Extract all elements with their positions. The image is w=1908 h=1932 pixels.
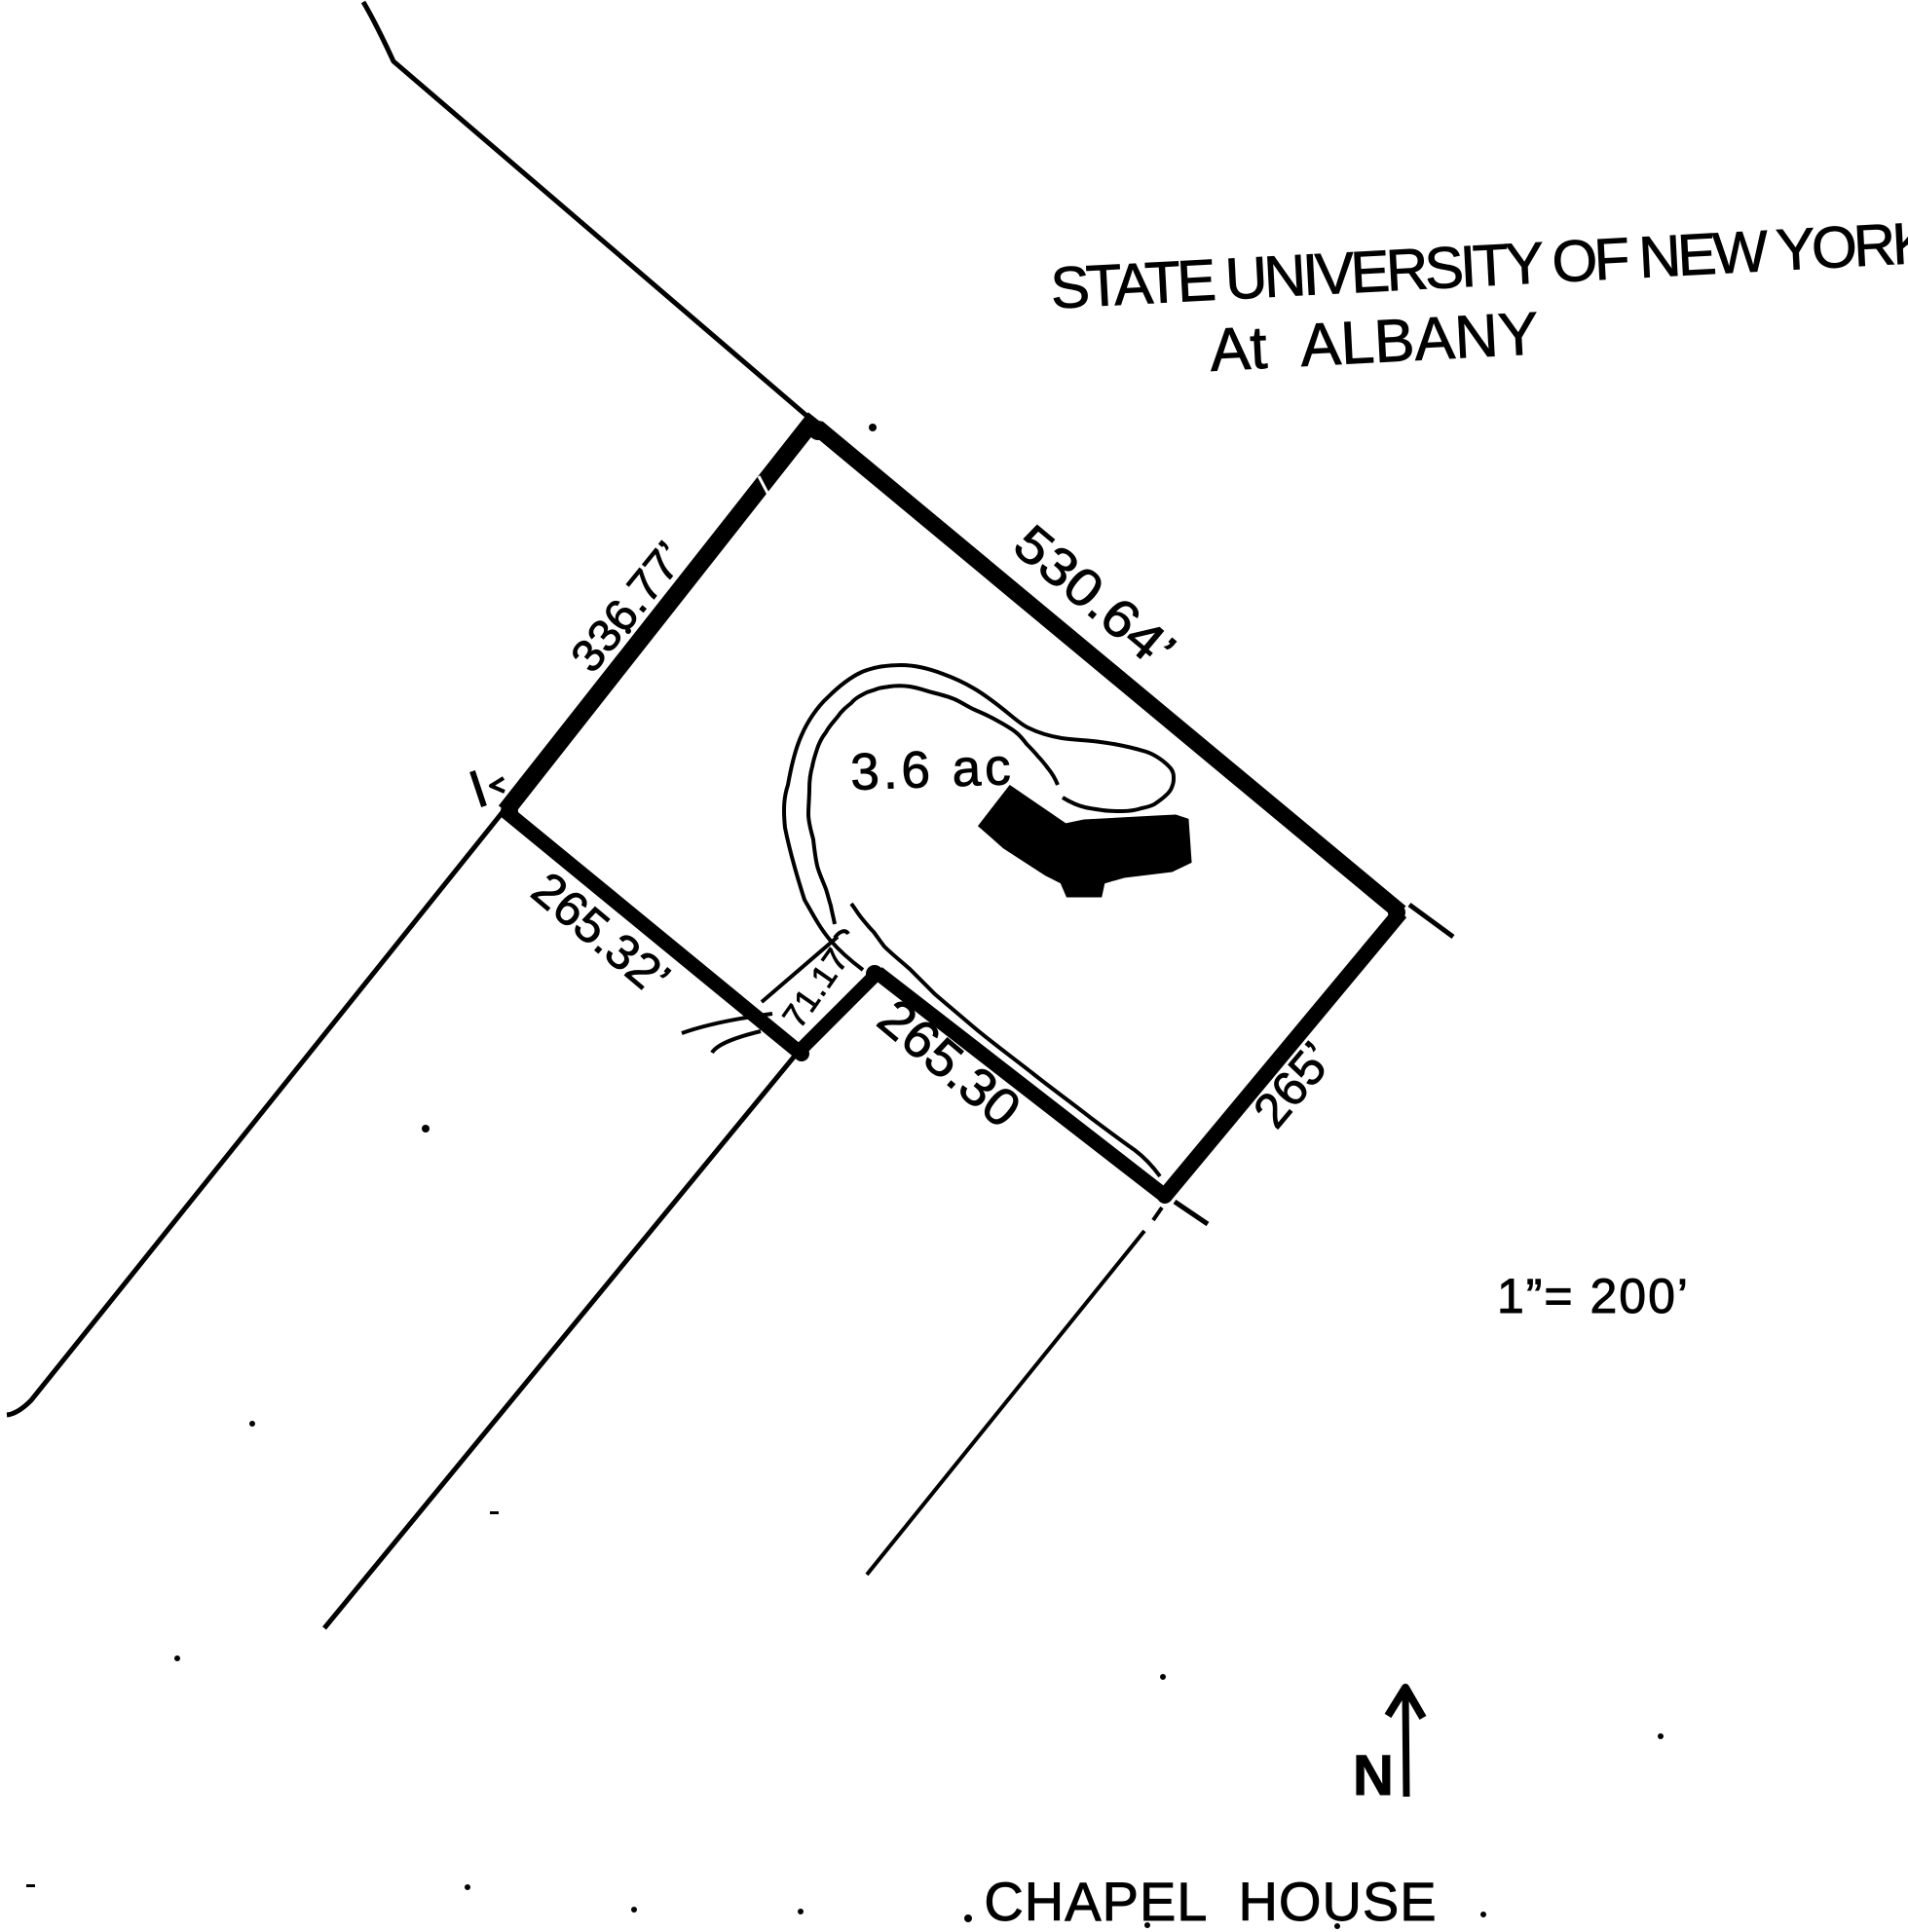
svg-text:N: N <box>1353 1744 1394 1807</box>
svg-text:1”= 200’: 1”= 200’ <box>1497 1269 1690 1323</box>
svg-text:CHAPEL HOUSE: CHAPEL HOUSE <box>984 1871 1437 1932</box>
svg-text:3.6 ac: 3.6 ac <box>849 738 1015 801</box>
